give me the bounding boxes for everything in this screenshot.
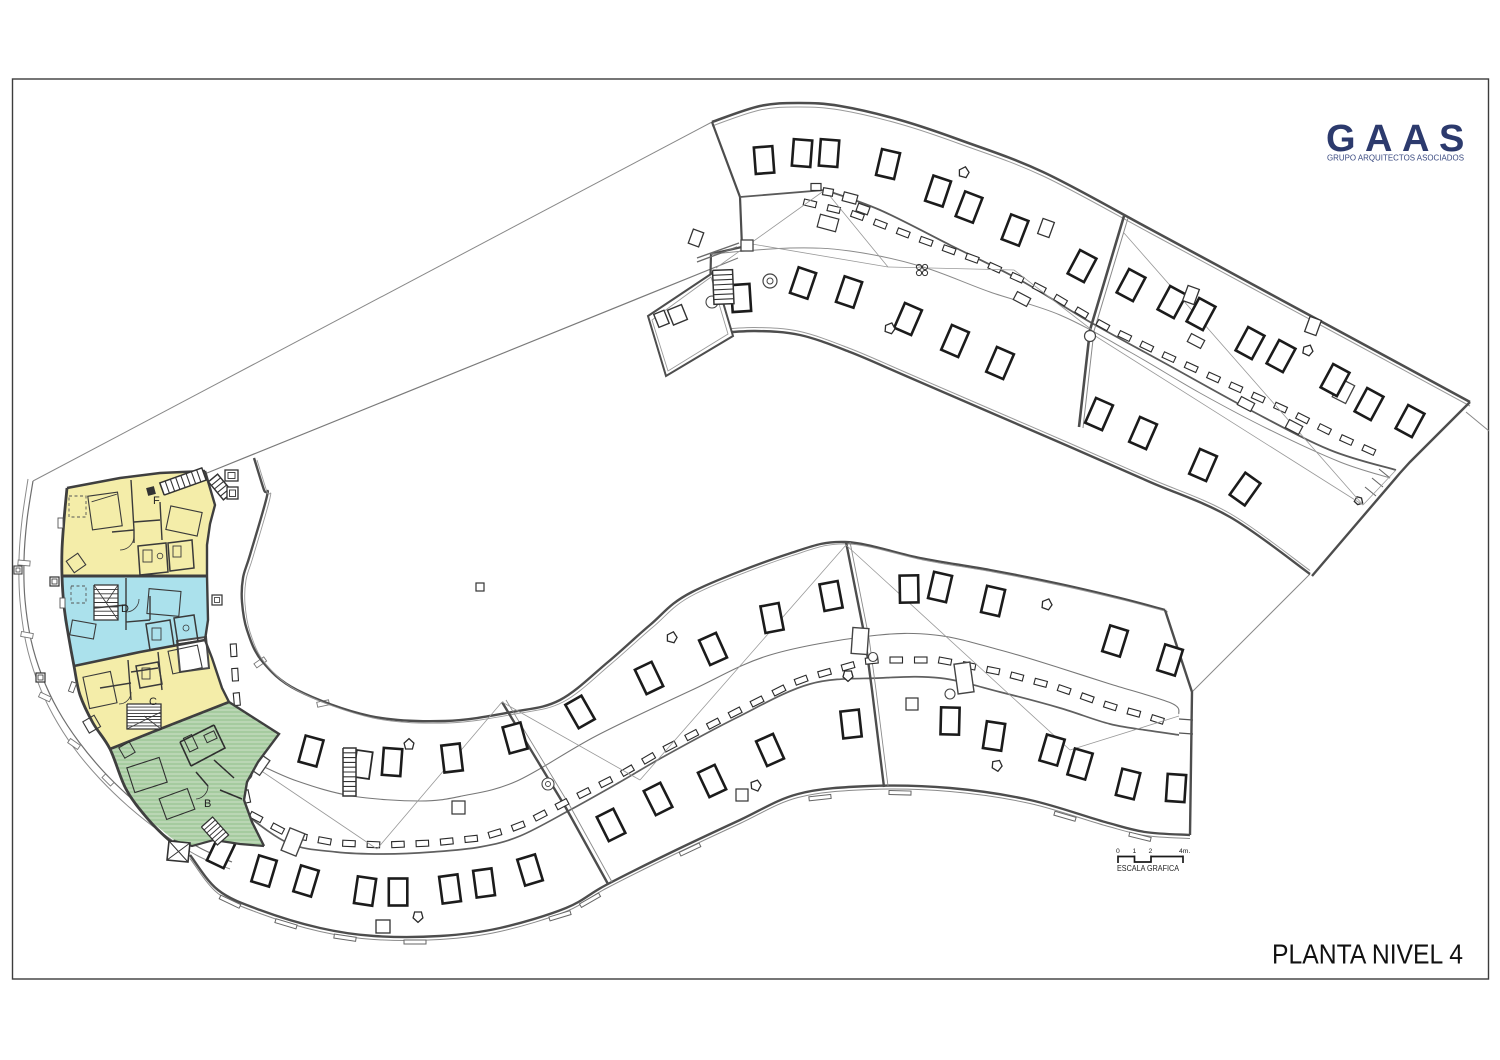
svg-text:ESCALA GRAFICA: ESCALA GRAFICA	[1117, 864, 1180, 873]
svg-text:0: 0	[1116, 848, 1120, 855]
svg-text:F: F	[153, 495, 160, 507]
svg-text:GRUPO ARQUITECTOS ASOCIADOS: GRUPO ARQUITECTOS ASOCIADOS	[1327, 154, 1464, 163]
svg-text:C: C	[149, 696, 157, 708]
svg-text:D: D	[121, 603, 129, 615]
svg-text:B: B	[204, 798, 211, 810]
svg-text:1: 1	[1133, 848, 1137, 855]
svg-text:2: 2	[1149, 848, 1153, 855]
svg-text:PLANTA NIVEL 4: PLANTA NIVEL 4	[1272, 939, 1463, 970]
svg-text:4m.: 4m.	[1179, 848, 1190, 855]
